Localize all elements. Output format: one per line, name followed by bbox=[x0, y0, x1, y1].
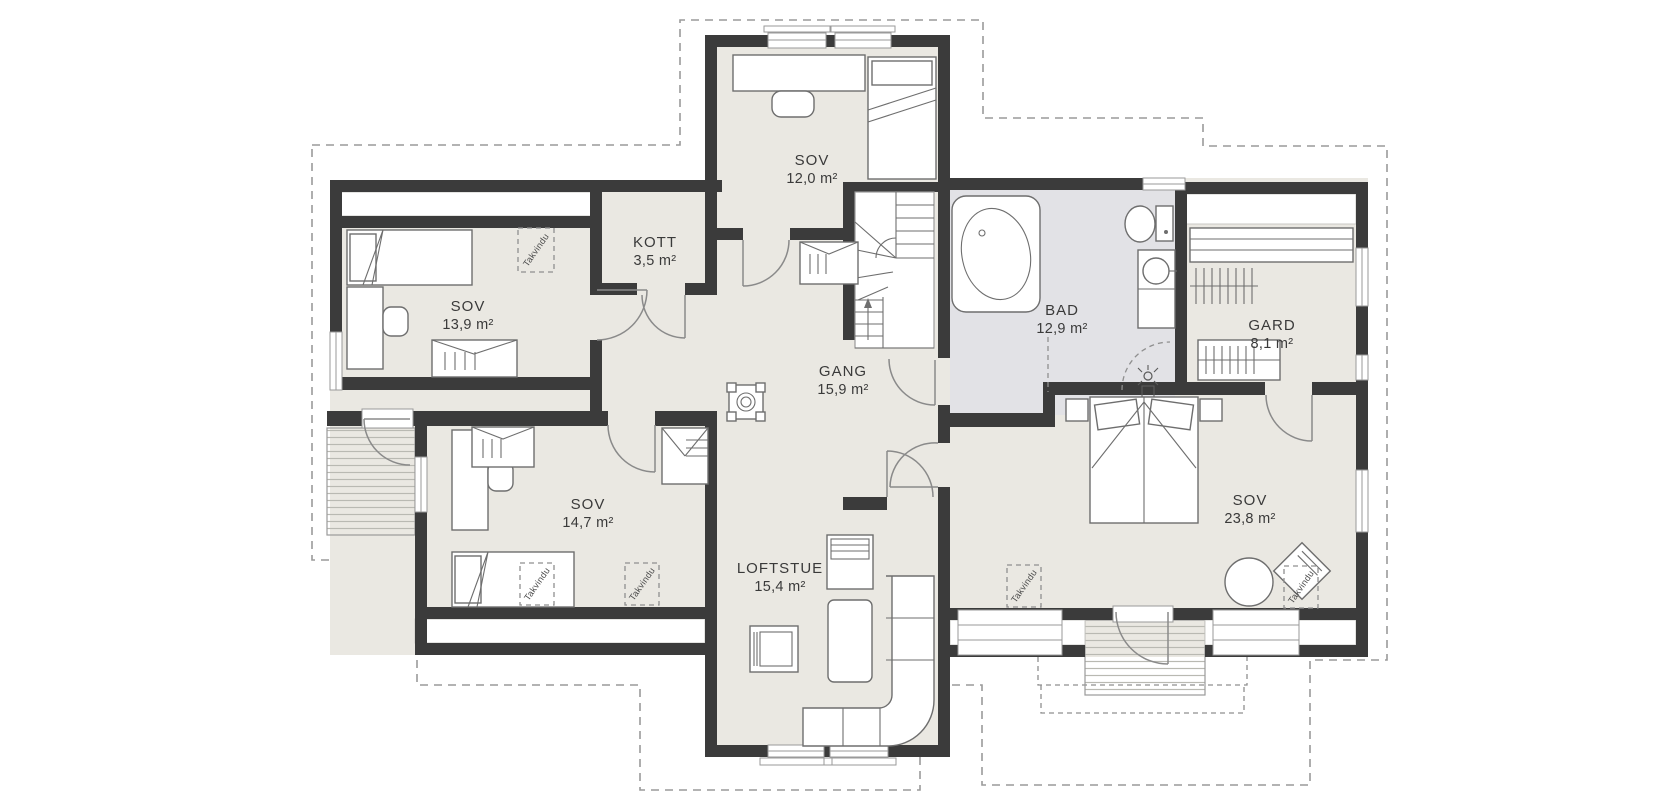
bed-single-nw bbox=[347, 230, 472, 285]
room-area: 12,9 m² bbox=[1036, 320, 1087, 338]
wardrobe-sov147 bbox=[472, 427, 534, 467]
room-name: SOV bbox=[562, 496, 613, 514]
room-name: GARD bbox=[1248, 317, 1295, 335]
roof-window-label: Takvindu bbox=[517, 245, 555, 255]
room-label-sov-120: SOV 12,0 m² bbox=[786, 152, 837, 188]
bed-double bbox=[1066, 397, 1222, 523]
room-name: SOV bbox=[786, 152, 837, 170]
bathroom-sink bbox=[1138, 250, 1177, 328]
coffee-table bbox=[828, 600, 872, 682]
room-label-sov-139: SOV 13,9 m² bbox=[442, 298, 493, 334]
room-name: SOV bbox=[1224, 492, 1275, 510]
room-name: BAD bbox=[1036, 302, 1087, 320]
roof-window-label: Takvindu bbox=[518, 579, 556, 589]
floor-plan: SOV 13,9 m² KOTT 3,5 m² SOV 12,0 m² GANG… bbox=[0, 0, 1670, 800]
round-chair bbox=[1225, 558, 1273, 606]
room-label-sov-147: SOV 14,7 m² bbox=[562, 496, 613, 532]
staircase bbox=[855, 192, 934, 348]
room-area: 8,1 m² bbox=[1248, 335, 1295, 353]
room-name: GANG bbox=[817, 363, 868, 381]
room-label-gang: GANG 15,9 m² bbox=[817, 363, 868, 399]
room-area: 3,5 m² bbox=[633, 252, 677, 270]
roof-window-label: Takvindu bbox=[623, 579, 661, 589]
room-name: LOFTSTUE bbox=[737, 560, 823, 578]
wardrobe-sov147-corner bbox=[662, 428, 708, 484]
balcony-south bbox=[1085, 620, 1205, 695]
room-label-bad: BAD 12,9 m² bbox=[1036, 302, 1087, 338]
floor-plan-drawing bbox=[0, 0, 1670, 800]
room-label-loftstue: LOFTSTUE 15,4 m² bbox=[737, 560, 823, 596]
roof-window-label: Takvindu bbox=[1282, 582, 1320, 592]
room-label-kott: KOTT 3,5 m² bbox=[633, 234, 677, 270]
room-area: 15,9 m² bbox=[817, 381, 868, 399]
tv bbox=[750, 626, 798, 672]
room-area: 23,8 m² bbox=[1224, 510, 1275, 528]
bed-single-north bbox=[868, 57, 936, 179]
room-label-gard: GARD 8,1 m² bbox=[1248, 317, 1295, 353]
toilet bbox=[1125, 206, 1173, 242]
bathtub bbox=[952, 196, 1040, 312]
chimney bbox=[727, 383, 765, 421]
roof-window-label: Takvindu bbox=[1005, 581, 1043, 591]
room-label-sov-238: SOV 23,8 m² bbox=[1224, 492, 1275, 528]
room-area: 12,0 m² bbox=[786, 170, 837, 188]
wardrobe-sov120 bbox=[800, 242, 858, 284]
room-area: 14,7 m² bbox=[562, 514, 613, 532]
room-name: KOTT bbox=[633, 234, 677, 252]
tv-cabinet bbox=[827, 535, 873, 589]
room-area: 13,9 m² bbox=[442, 316, 493, 334]
wardrobe-sov139 bbox=[432, 340, 517, 377]
room-name: SOV bbox=[442, 298, 493, 316]
room-area: 15,4 m² bbox=[737, 578, 823, 596]
